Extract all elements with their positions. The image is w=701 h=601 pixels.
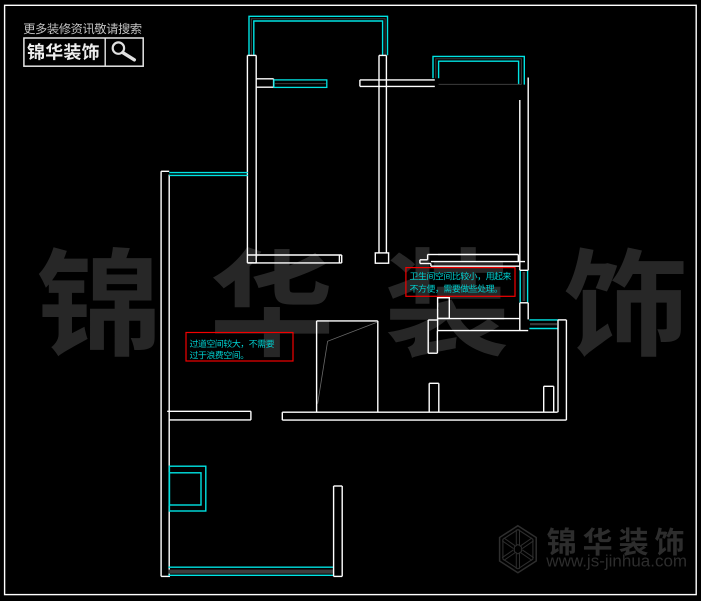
svg-text:www.js-jinhua.com: www.js-jinhua.com (545, 551, 687, 570)
